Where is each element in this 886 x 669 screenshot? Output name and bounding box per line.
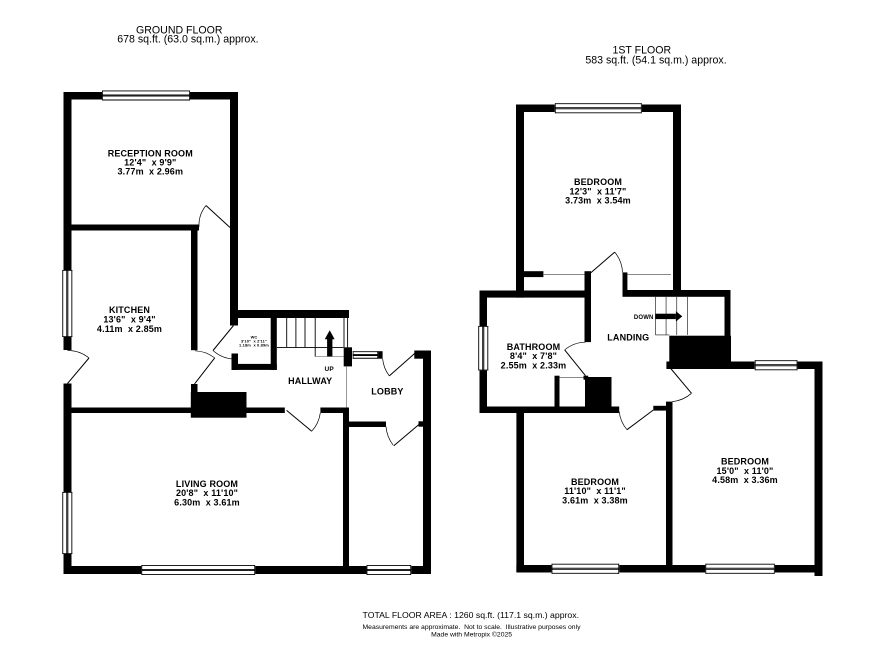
svg-text:Measurements are approximate.: Measurements are approximate. Not to sca…: [363, 624, 582, 631]
svg-text:LOBBY: LOBBY: [371, 386, 403, 396]
svg-text:4.11m x 2.85m: 4.11m x 2.85m: [97, 324, 162, 334]
svg-text:1.18m x 0.89m: 1.18m x 0.89m: [239, 343, 269, 348]
svg-text:3.73m x 3.54m: 3.73m x 3.54m: [565, 196, 631, 206]
svg-text:Made with Metropix ©2025: Made with Metropix ©2025: [431, 630, 512, 638]
svg-text:TOTAL FLOOR AREA : 1260 sq.ft.: TOTAL FLOOR AREA : 1260 sq.ft. (117.1 sq…: [363, 610, 579, 620]
svg-text:4.58m x 3.36m: 4.58m x 3.36m: [712, 475, 778, 485]
svg-text:2.55m x 2.33m: 2.55m x 2.33m: [501, 360, 567, 370]
svg-text:6.30m x 3.61m: 6.30m x 3.61m: [174, 498, 240, 508]
svg-text:HALLWAY: HALLWAY: [288, 376, 332, 386]
svg-text:3.77m x 2.96m: 3.77m x 2.96m: [117, 166, 183, 176]
svg-text:DOWN: DOWN: [634, 315, 654, 321]
svg-text:UP: UP: [325, 366, 335, 373]
svg-text:583 sq.ft. (54.1 sq.m.) approx: 583 sq.ft. (54.1 sq.m.) approx.: [585, 54, 726, 66]
svg-text:3.61m x 3.38m: 3.61m x 3.38m: [562, 495, 628, 505]
svg-text:678 sq.ft. (63.0 sq.m.) approx: 678 sq.ft. (63.0 sq.m.) approx.: [117, 34, 258, 46]
svg-text:LANDING: LANDING: [607, 332, 649, 342]
